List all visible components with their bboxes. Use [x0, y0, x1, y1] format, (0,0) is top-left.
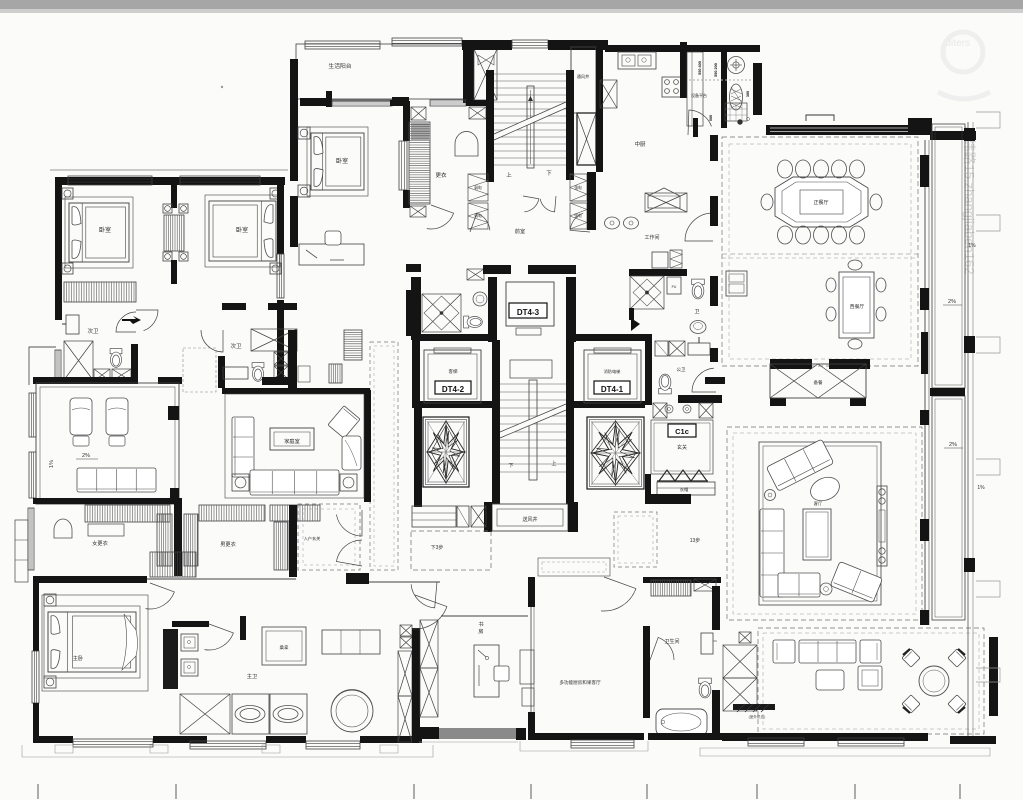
svg-text:前室: 前室	[515, 227, 525, 235]
svg-text:卧室: 卧室	[336, 157, 348, 165]
svg-text:多功能厨房和果客厅: 多功能厨房和果客厅	[559, 679, 601, 686]
svg-text:八纬路15.zhangjiaben162: 八纬路15.zhangjiaben162	[962, 126, 977, 275]
svg-text:弱电: 弱电	[474, 185, 482, 190]
svg-text:Jiters: Jiters	[946, 38, 970, 49]
svg-text:550 200: 550 200	[714, 63, 718, 77]
svg-text:卫生间: 卫生间	[664, 638, 679, 645]
svg-text:书: 书	[478, 620, 483, 628]
svg-text:卫: 卫	[694, 309, 699, 315]
svg-text:(室外机位): (室外机位)	[749, 714, 766, 719]
svg-text:DT4-3: DT4-3	[517, 308, 540, 317]
svg-text:送风井: 送风井	[522, 516, 537, 523]
svg-text:正餐厅: 正餐厅	[813, 199, 828, 206]
svg-text:备餐: 备餐	[814, 379, 823, 386]
svg-text:公卫: 公卫	[677, 367, 686, 372]
svg-text:入户玄关: 入户玄关	[304, 535, 321, 542]
svg-text:强电: 强电	[574, 185, 582, 190]
svg-text:300: 300	[746, 91, 750, 97]
svg-text:2%: 2%	[948, 299, 956, 305]
svg-text:桑拿: 桑拿	[280, 644, 289, 651]
svg-text:卧室: 卧室	[99, 226, 111, 234]
svg-text:2%: 2%	[82, 453, 90, 459]
svg-text:客厅: 客厅	[814, 500, 822, 507]
svg-text:衣帽: 衣帽	[680, 486, 688, 493]
svg-text:DT4-2: DT4-2	[442, 385, 465, 394]
svg-text:上: 上	[551, 460, 556, 467]
svg-text:1%: 1%	[49, 460, 55, 468]
svg-text:下3步: 下3步	[431, 545, 444, 551]
svg-text:2%: 2%	[949, 442, 957, 448]
svg-text:550 400: 550 400	[698, 61, 702, 75]
svg-text:上: 上	[506, 171, 512, 179]
svg-text:设备平台: 设备平台	[691, 92, 707, 98]
svg-text:更衣: 更衣	[435, 171, 447, 179]
svg-text:主卧: 主卧	[73, 654, 83, 662]
svg-text:500: 500	[709, 115, 713, 121]
svg-text:次卫: 次卫	[87, 327, 99, 335]
svg-text:1%: 1%	[977, 485, 985, 491]
svg-text:客梯: 客梯	[449, 368, 458, 375]
svg-text:下: 下	[546, 170, 552, 177]
svg-text:女更衣: 女更衣	[92, 539, 108, 547]
svg-text:1%: 1%	[968, 243, 976, 249]
svg-text:卧室: 卧室	[236, 226, 248, 234]
svg-text:中厨: 中厨	[634, 140, 646, 148]
svg-text:家庭室: 家庭室	[284, 437, 300, 445]
svg-text:玄关: 玄关	[677, 444, 687, 451]
svg-text:西餐厅: 西餐厅	[850, 303, 865, 310]
svg-text:生活阳台: 生活阳台	[328, 62, 351, 70]
svg-text:房: 房	[478, 627, 483, 635]
svg-text:13步: 13步	[690, 538, 701, 544]
svg-text:次卫: 次卫	[230, 342, 242, 350]
svg-text:工作间: 工作间	[644, 234, 659, 241]
svg-text:消防电梯: 消防电梯	[604, 368, 621, 375]
svg-text:男更衣: 男更衣	[220, 540, 236, 548]
svg-text:下: 下	[508, 463, 513, 469]
svg-text:主卫: 主卫	[247, 672, 257, 680]
svg-text:通风井: 通风井	[577, 73, 590, 80]
svg-text:C1c: C1c	[675, 427, 689, 436]
svg-text:DT4-1: DT4-1	[601, 385, 624, 394]
svg-text:PU: PU	[672, 285, 677, 289]
